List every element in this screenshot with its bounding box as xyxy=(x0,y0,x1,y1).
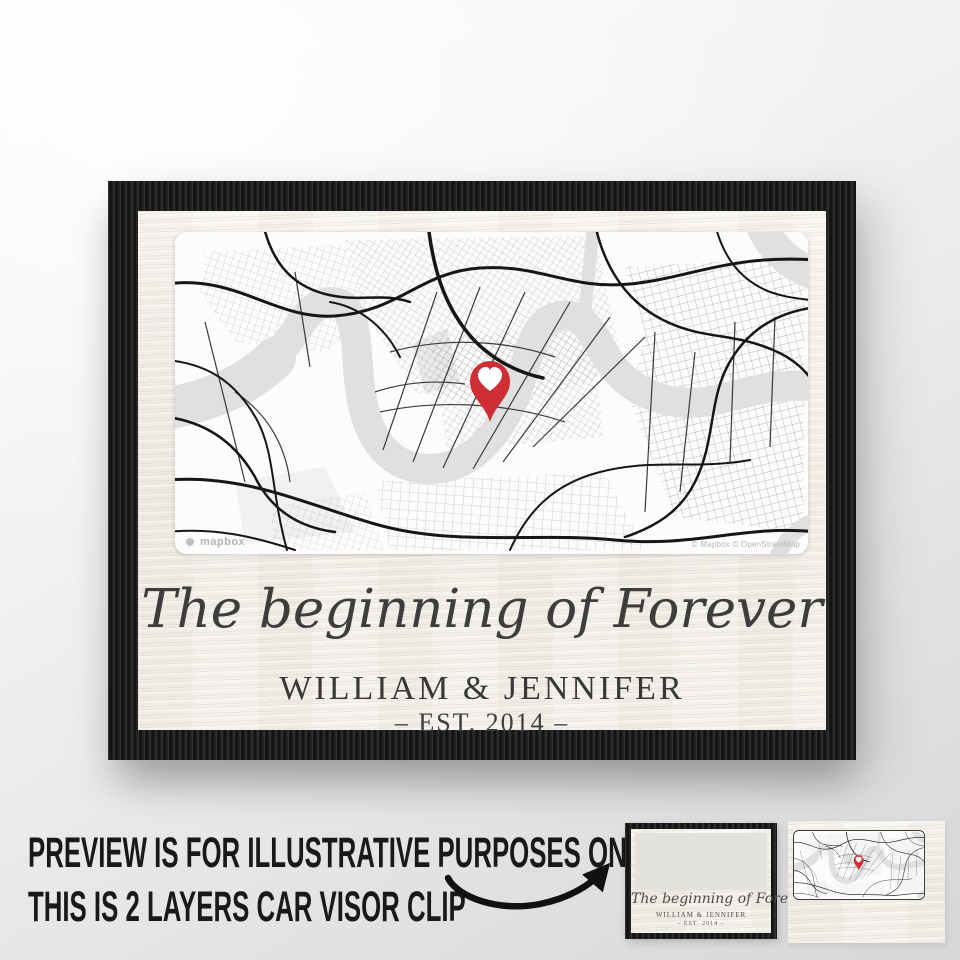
thumbnail-layer2-map-card xyxy=(793,830,925,900)
thumbnail-layer1-map-placeholder xyxy=(635,833,767,890)
poster-names: WILLIAM & JENNIFER xyxy=(138,670,826,708)
curved-arrow-icon xyxy=(440,858,626,920)
poster-established-year: – EST. 2014 – xyxy=(138,708,826,738)
thumbnail-layer1-names: WILLIAM & JENNIFER xyxy=(631,911,771,919)
thumbnail-layer1-frame: The beginning of Forever WILLIAM & JENNI… xyxy=(625,823,777,939)
poster-frame: mapbox © Mapbox © OpenStreetMap The begi… xyxy=(108,181,856,760)
map-card: mapbox © Mapbox © OpenStreetMap xyxy=(175,232,808,554)
poster-title: The beginning of Forever xyxy=(138,579,826,640)
product-preview-image: mapbox © Mapbox © OpenStreetMap The begi… xyxy=(0,0,960,960)
thumbnail-layer1-title: The beginning of Forever xyxy=(631,891,771,907)
thumbnail-city-map xyxy=(794,831,924,899)
mapbox-circle-icon xyxy=(184,536,196,548)
poster-background-wood: mapbox © Mapbox © OpenStreetMap The begi… xyxy=(138,211,826,730)
thumbnail-layer2-panel xyxy=(788,821,945,943)
thumbnail-layer1-established: – EST. 2014 – xyxy=(631,921,771,927)
disclaimer-line-2: THIS IS 2 LAYERS CAR VISOR CLIP xyxy=(28,886,466,929)
mapbox-logo-icon: mapbox xyxy=(184,536,245,548)
city-street-map xyxy=(175,232,808,554)
mapbox-wordmark: mapbox xyxy=(200,536,245,548)
map-attribution: © Mapbox © OpenStreetMap xyxy=(692,540,800,549)
thumbnail-layer1-wood: The beginning of Forever WILLIAM & JENNI… xyxy=(631,829,771,933)
